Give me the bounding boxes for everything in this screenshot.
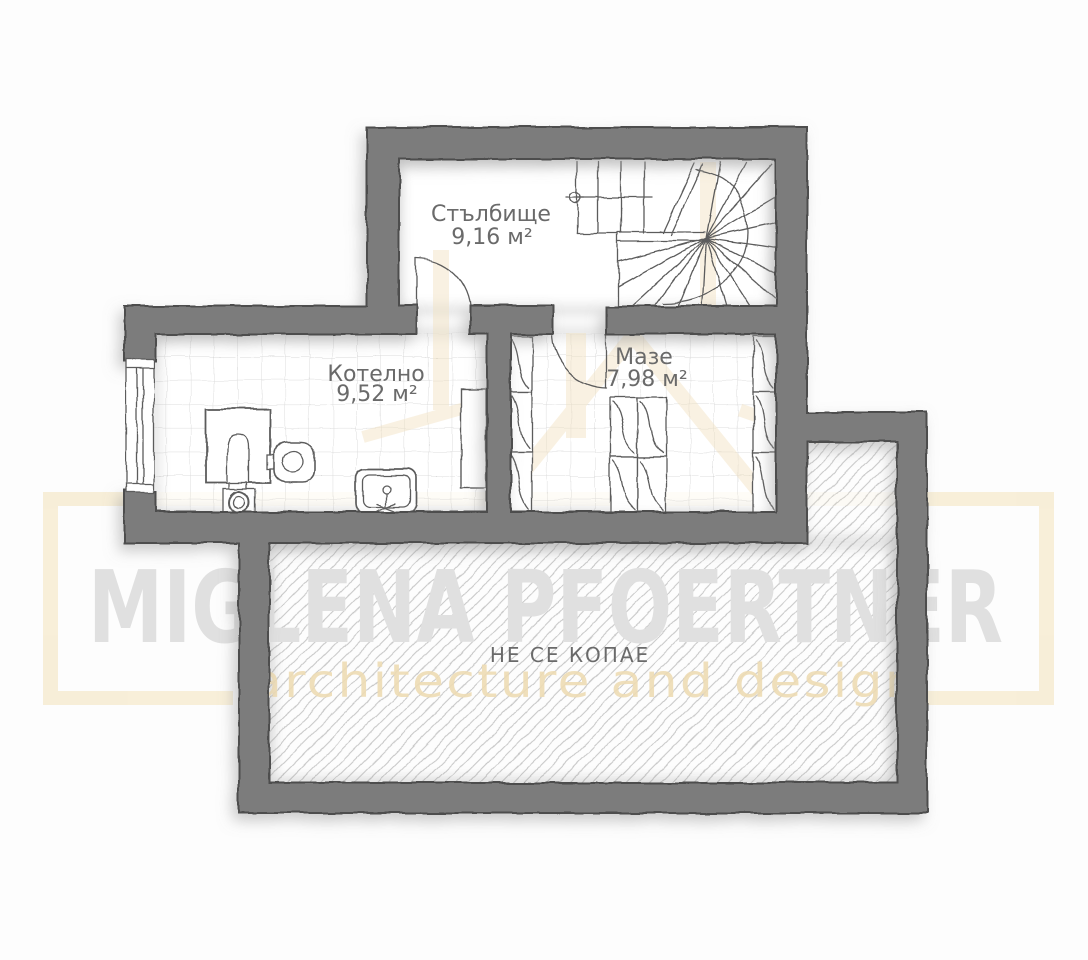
- duct-panel: [461, 389, 486, 488]
- watermark-frame-right: [1039, 492, 1054, 705]
- window: [126, 359, 154, 493]
- shelf-unit-center: [610, 397, 666, 514]
- room-area-staircase: 9,16 м²: [451, 225, 532, 250]
- boiler-unit: [206, 409, 270, 492]
- shelf-unit-left: [509, 336, 532, 514]
- sink: [356, 469, 416, 513]
- floor-plan-page: MIGLENA PFOERTNER architecture and desig…: [0, 0, 1088, 960]
- floor-drain: [223, 489, 255, 515]
- no-dig-label: НЕ СЕ КОПАЕ: [490, 643, 650, 667]
- room-label-staircase: Стълбище: [431, 202, 551, 227]
- room-area-cellar: 7,98 м²: [606, 367, 687, 392]
- floor-plan-drawing: MIGLENA PFOERTNER architecture and desig…: [0, 0, 1088, 960]
- room-area-boiler: 9,52 м²: [336, 382, 417, 407]
- watermark-frame-left: [43, 492, 58, 705]
- shelf-unit-right: [753, 336, 777, 514]
